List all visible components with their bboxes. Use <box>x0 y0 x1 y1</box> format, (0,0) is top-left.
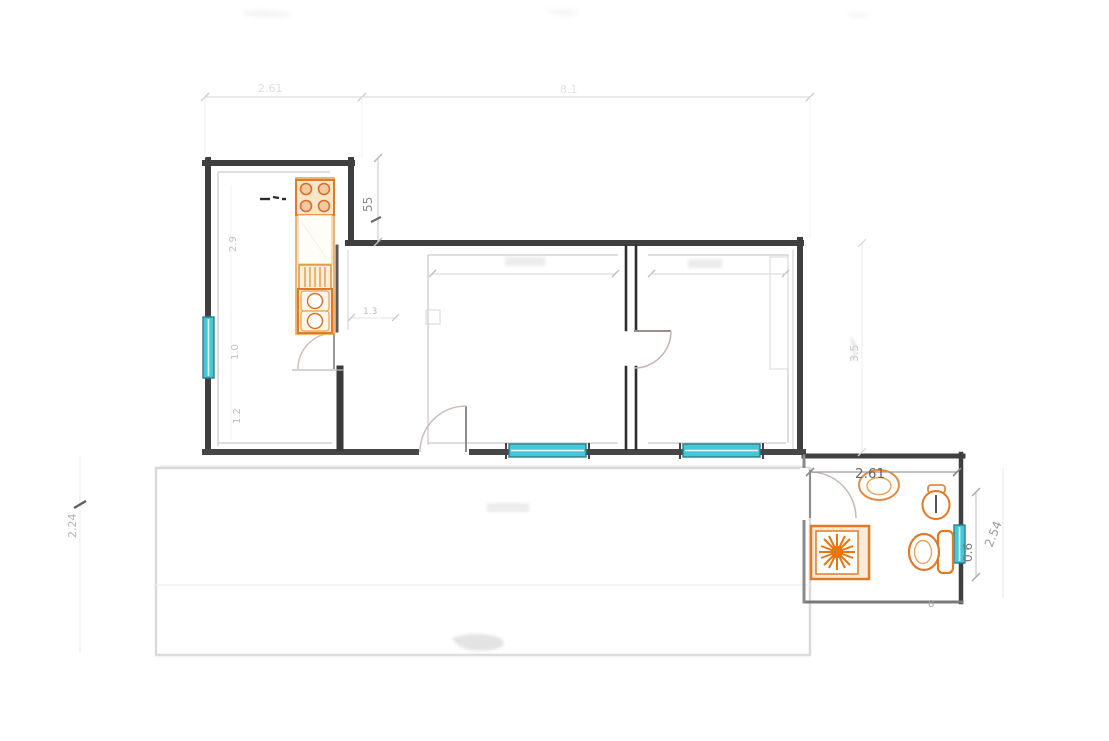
bedroom-window <box>680 443 763 459</box>
illegible-label-smudge <box>688 259 722 268</box>
kitchen-left-dimensions: 2.9 1.0 1.2 <box>228 185 243 440</box>
shower-icon <box>811 526 869 579</box>
dim-label-kitchen-height: 2.9 <box>228 236 239 252</box>
faucet-marking-icon <box>260 197 286 199</box>
room-interior-dim-lines <box>429 270 789 277</box>
floor-plan-scan: 2.61 8.1 55 2.9 1.0 1.2 1.3 2.24 <box>0 0 1109 741</box>
illegible-room-labels <box>505 257 722 268</box>
stove-icon <box>296 180 334 215</box>
kitchen-door <box>292 333 344 370</box>
dim-label-kitchen-lower: 1.2 <box>232 408 243 424</box>
dim-label-kitchen-window: 1.0 <box>230 344 241 360</box>
dim-label-main-width: 8.1 <box>560 83 578 96</box>
dim-label-bathroom-window: 0.6 <box>961 543 975 562</box>
dim-label-kitchen-width: 2.61 <box>258 82 283 95</box>
dim-label-bathroom-depth: 2.54 <box>982 519 1005 549</box>
sink-drain <box>308 314 323 329</box>
terrace <box>156 466 810 657</box>
dim-label-bathroom-bottom-mark: 8 <box>928 599 934 610</box>
kitchen-unit <box>260 178 334 334</box>
illegible-label-smudge <box>156 503 810 657</box>
burner <box>319 201 330 212</box>
burner <box>319 184 330 195</box>
toilet-bowl <box>909 534 939 570</box>
kitchen-step-dimension: 55 <box>361 154 382 246</box>
kitchen-passage-dimension: 1.3 <box>348 307 399 321</box>
bedroom-inner <box>648 255 788 443</box>
bathroom-fixtures <box>811 470 953 579</box>
dim-label-kitchen-step: 55 <box>361 197 375 212</box>
door-swing-glyph <box>634 331 671 368</box>
terrace-outline <box>156 468 810 655</box>
terrace-left-dimension: 2.24 <box>66 455 86 652</box>
kitchen-window <box>203 317 214 378</box>
dim-label-terrace-depth: 2.24 <box>66 514 79 539</box>
counter-top <box>298 215 332 264</box>
living-room-window <box>506 443 589 459</box>
floor-plan-drawing: 2.61 8.1 55 2.9 1.0 1.2 1.3 2.24 <box>0 0 1109 741</box>
bidet-icon <box>923 485 950 519</box>
toilet-tank <box>938 531 953 573</box>
scan-noise-smudges <box>240 9 871 19</box>
front-door-opening <box>419 445 469 459</box>
bedroom-door <box>634 331 671 368</box>
kitchen-sink-icon <box>298 289 332 333</box>
living-bedroom-divider <box>626 246 636 449</box>
bathroom-width-dimension: 2.61 <box>806 466 961 482</box>
bathroom-door <box>810 470 856 518</box>
main-right-dimension: 3.5 <box>848 239 866 456</box>
burner <box>301 201 312 212</box>
door-swing-glyph <box>298 333 334 369</box>
living-room-inner <box>428 255 618 449</box>
kitchen-counter <box>298 215 332 264</box>
sink-drain <box>308 294 323 309</box>
dish-drainer-icon <box>299 265 331 289</box>
shower-drain <box>831 546 843 558</box>
dim-dark-tick <box>371 217 381 222</box>
door-swing-glyph <box>810 472 856 518</box>
illegible-label-smudge <box>505 257 545 266</box>
faucet-mark <box>273 197 279 198</box>
burner <box>301 184 312 195</box>
noise-smudge <box>845 12 871 19</box>
dim-label-bathroom-width: 2.61 <box>855 466 885 482</box>
noise-smudge <box>240 10 291 17</box>
dim-label-kitchen-passage: 1.3 <box>363 307 377 317</box>
toilet-icon <box>909 531 953 573</box>
noise-smudge <box>545 9 579 17</box>
doors <box>292 331 856 518</box>
